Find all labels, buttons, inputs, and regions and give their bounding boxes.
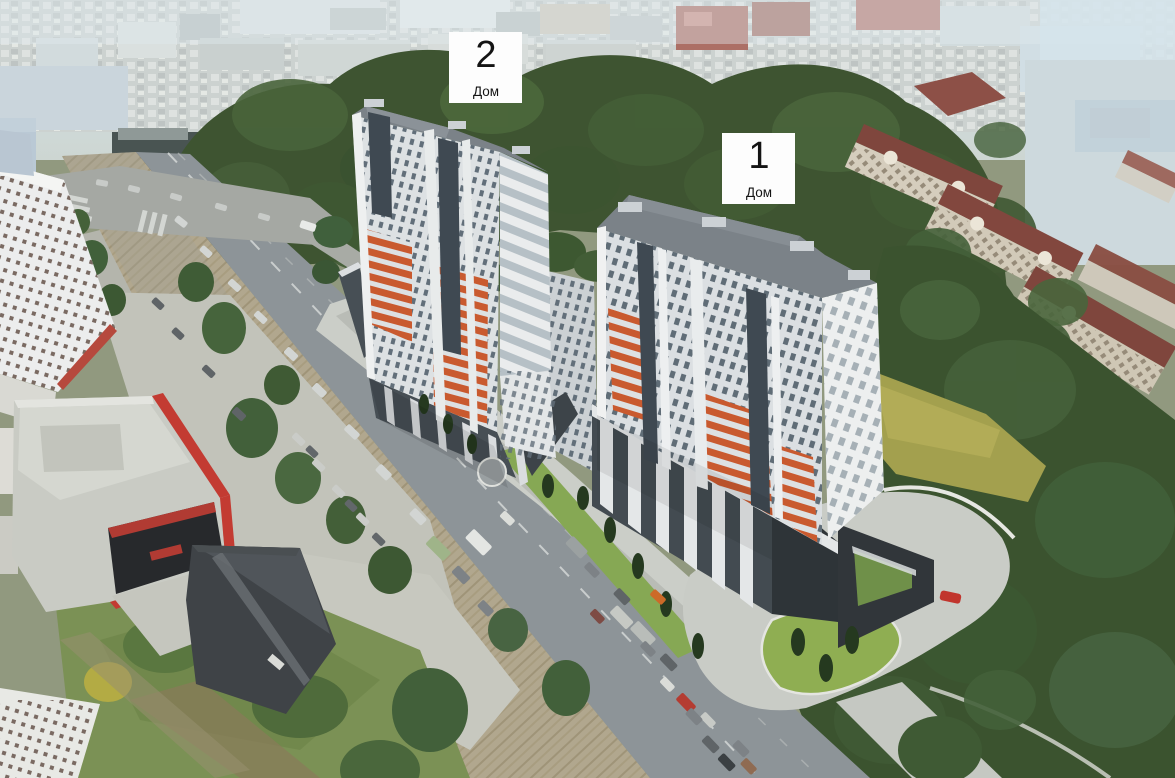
svg-text:Дом: Дом [746, 185, 772, 200]
svg-text:1: 1 [748, 135, 769, 177]
svg-text:2: 2 [475, 34, 496, 76]
svg-text:Дом: Дом [473, 84, 499, 99]
